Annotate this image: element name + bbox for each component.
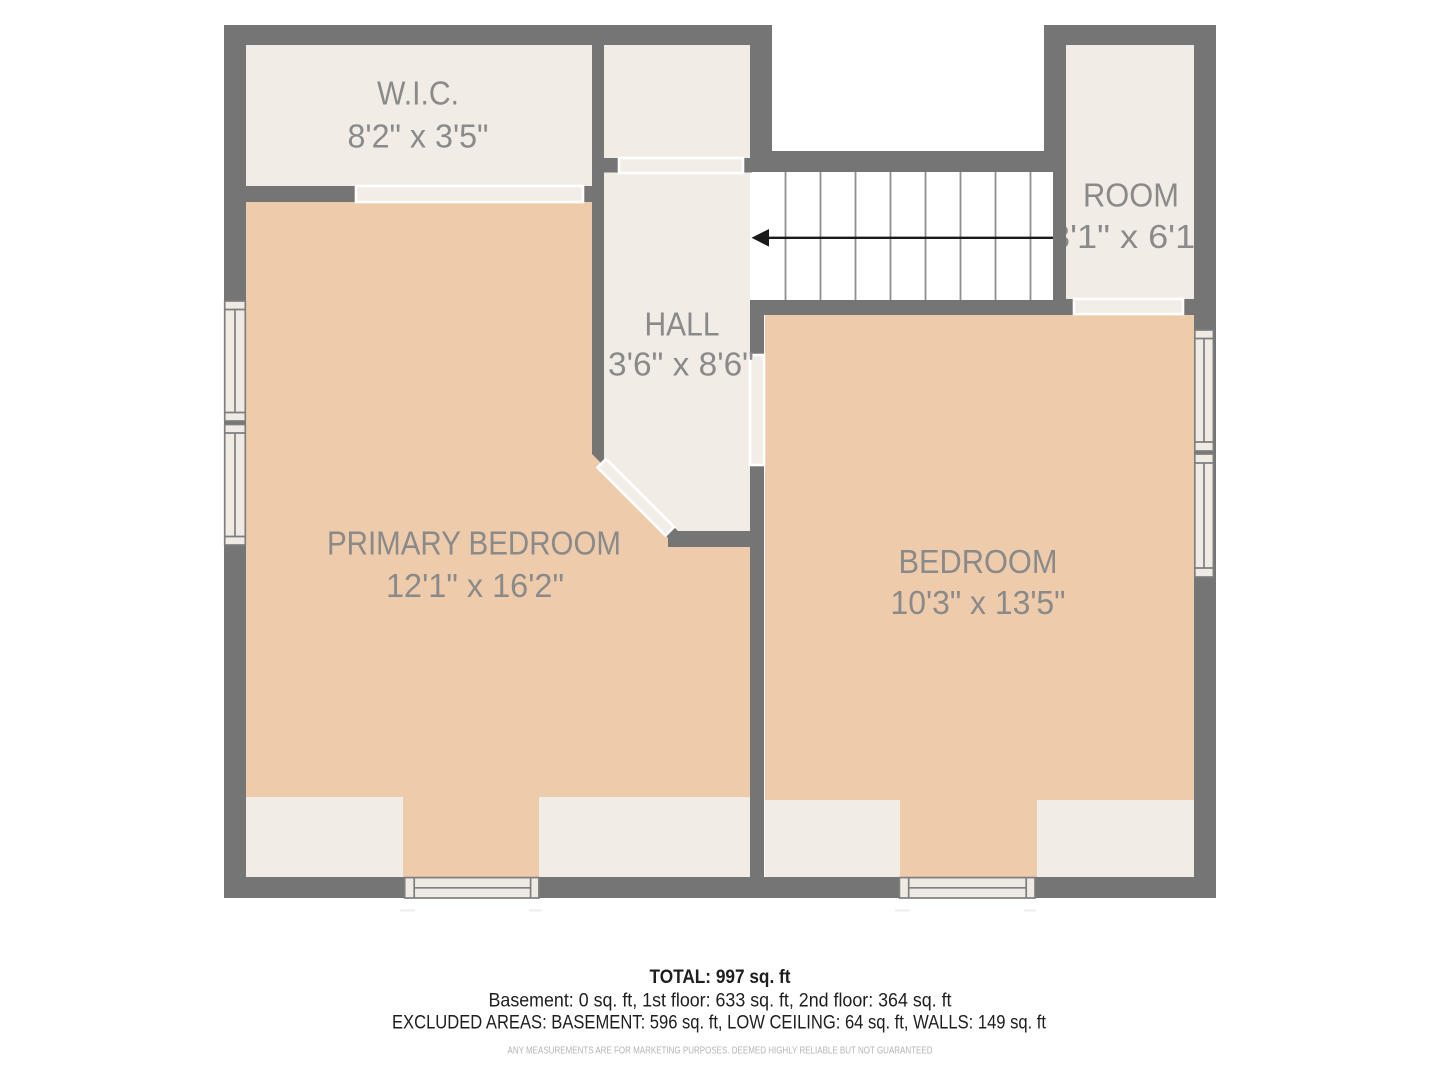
svg-text:ROOM: ROOM [1083, 177, 1179, 214]
svg-text:10'3" x 13'5": 10'3" x 13'5" [891, 584, 1066, 621]
svg-text:TOTAL: 997 sq. ft: TOTAL: 997 sq. ft [650, 966, 791, 988]
svg-text:3'1" x 6'1": 3'1" x 6'1" [1050, 218, 1208, 255]
svg-text:3'6" x 8'6": 3'6" x 8'6" [608, 346, 754, 383]
svg-text:EXCLUDED AREAS: BASEMENT: 596: EXCLUDED AREAS: BASEMENT: 596 sq. ft, LO… [392, 1012, 1046, 1034]
svg-text:ANY MEASUREMENTS ARE FOR MARKE: ANY MEASUREMENTS ARE FOR MARKETING PURPO… [508, 1045, 933, 1057]
svg-text:BEDROOM: BEDROOM [899, 543, 1058, 580]
svg-text:Basement: 0 sq. ft, 1st floor:: Basement: 0 sq. ft, 1st floor: 633 sq. f… [489, 990, 953, 1012]
svg-text:HALL: HALL [645, 306, 720, 343]
svg-text:12'1" x 16'2": 12'1" x 16'2" [386, 567, 564, 604]
svg-text:W.I.C.: W.I.C. [377, 75, 459, 112]
svg-text:PRIMARY BEDROOM: PRIMARY BEDROOM [327, 525, 621, 562]
svg-text:8'2" x 3'5": 8'2" x 3'5" [348, 118, 489, 155]
